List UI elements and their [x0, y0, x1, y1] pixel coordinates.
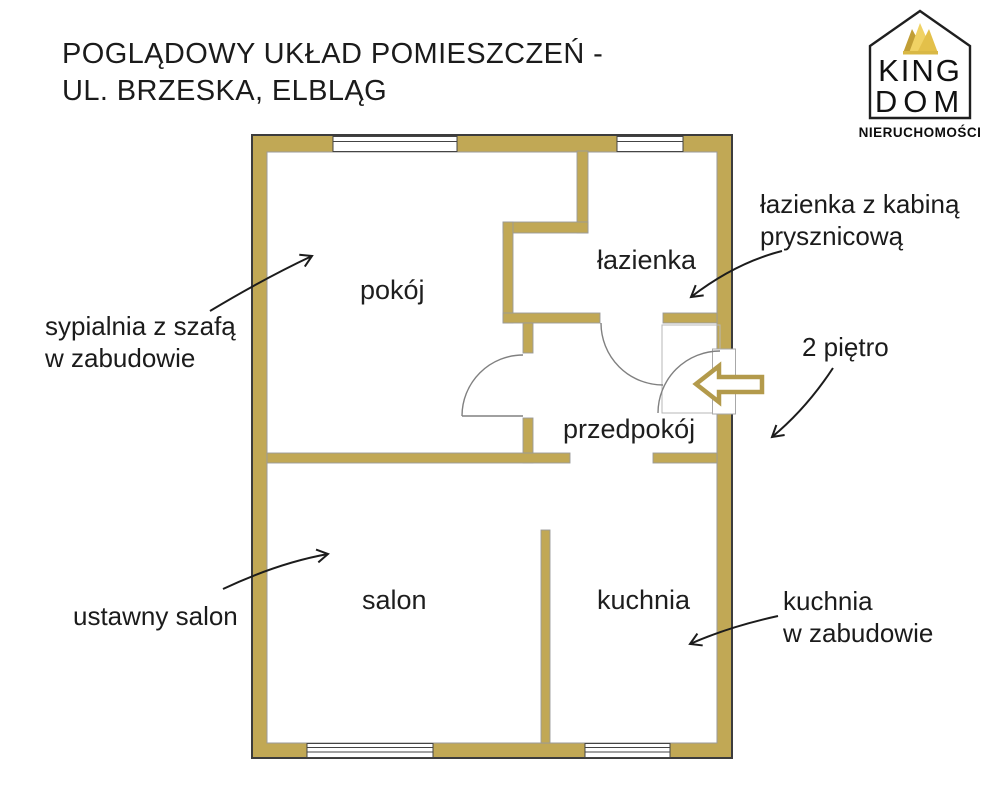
wall-lazienka-south-left [503, 313, 600, 323]
arrow-living [223, 554, 328, 589]
wall-pokoj-east [503, 222, 513, 323]
room-label-pokoj: pokój [360, 275, 425, 305]
window-lazienka [617, 137, 683, 152]
wall-mid-left [267, 453, 570, 463]
room-label-kuchnia: kuchnia [597, 585, 690, 615]
annotation-kitchen: kuchnia w zabudowie [783, 585, 933, 649]
crown-icon [903, 23, 938, 55]
window-salon [307, 744, 433, 758]
page-title-line1: POGLĄDOWY UKŁAD POMIESZCZEŃ - [62, 36, 603, 73]
outer-walls [252, 135, 732, 758]
logo-brand-bottom: DOM [875, 84, 965, 119]
annotation-arrows [210, 251, 833, 644]
agency-logo: KING DOM NIERUCHOMOŚCI [845, 8, 982, 143]
room-label-przedpokoj: przedpokój [563, 414, 695, 444]
annotation-bedroom-line1: sypialnia z szafą [45, 310, 236, 342]
inner-wall-outline [267, 152, 717, 743]
window-pokoj [333, 137, 457, 152]
door-arc-pokoj [462, 355, 523, 416]
door-arc-lazienka [601, 323, 663, 385]
page-title: POGLĄDOWY UKŁAD POMIESZCZEŃ - UL. BRZESK… [62, 36, 603, 110]
annotation-kitchen-line1: kuchnia [783, 585, 933, 617]
annotation-floor: 2 piętro [802, 331, 889, 363]
arrow-kitchen [690, 616, 778, 644]
logo-brand-top: KING [878, 53, 962, 88]
room-label-salon: salon [362, 585, 427, 615]
logo-subtitle: NIERUCHOMOŚCI [859, 125, 982, 140]
interior-walls [267, 151, 717, 743]
annotation-bedroom: sypialnia z szafą w zabudowie [45, 310, 236, 374]
wall-mid-right [653, 453, 717, 463]
annotation-living: ustawny salon [73, 600, 238, 632]
floor-plan-page: { "title": { "line1": "POGLĄDOWY UKŁAD P… [0, 0, 982, 800]
floor-plan-drawing [0, 0, 982, 800]
windows [307, 137, 683, 758]
page-title-line2: UL. BRZESKA, ELBLĄG [62, 73, 603, 110]
annotation-bathroom-line1: łazienka z kabiną [760, 188, 959, 220]
room-label-lazienka: łazienka [597, 245, 696, 275]
entrance-door-frame [662, 325, 720, 413]
arrow-floor [772, 368, 833, 437]
logo-graphic: KING DOM NIERUCHOMOŚCI [845, 8, 982, 143]
wall-salon-kuchnia-divider [541, 530, 550, 743]
outer-wall-outline [252, 135, 732, 758]
window-kuchnia [585, 744, 670, 758]
wall-lazienka-step [503, 222, 588, 233]
annotation-bedroom-line2: w zabudowie [45, 342, 236, 374]
wall-lazienka-west-upper [577, 151, 588, 233]
annotation-bathroom-line2: prysznicową [760, 220, 959, 252]
wall-przedpokoj-west-stub [523, 323, 533, 353]
door-arcs [462, 323, 720, 416]
annotation-bathroom: łazienka z kabiną prysznicową [760, 188, 959, 252]
annotation-kitchen-line2: w zabudowie [783, 617, 933, 649]
arrow-bathroom [691, 251, 782, 297]
wall-lazienka-south-right [663, 313, 717, 323]
